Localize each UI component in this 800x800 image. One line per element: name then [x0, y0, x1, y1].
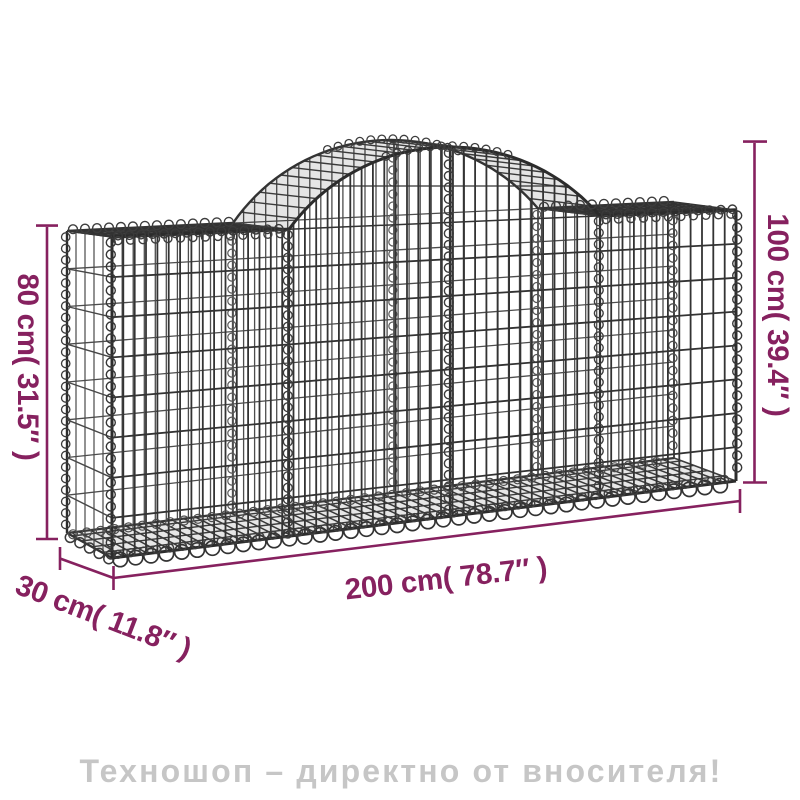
- svg-text:100 cm( 39.4″ ): 100 cm( 39.4″ ): [761, 213, 794, 416]
- svg-text:Техношоп – директно от вносите: Техношоп – директно от вносителя!: [80, 753, 723, 789]
- svg-text:80 cm( 31.5″ ): 80 cm( 31.5″ ): [11, 273, 44, 460]
